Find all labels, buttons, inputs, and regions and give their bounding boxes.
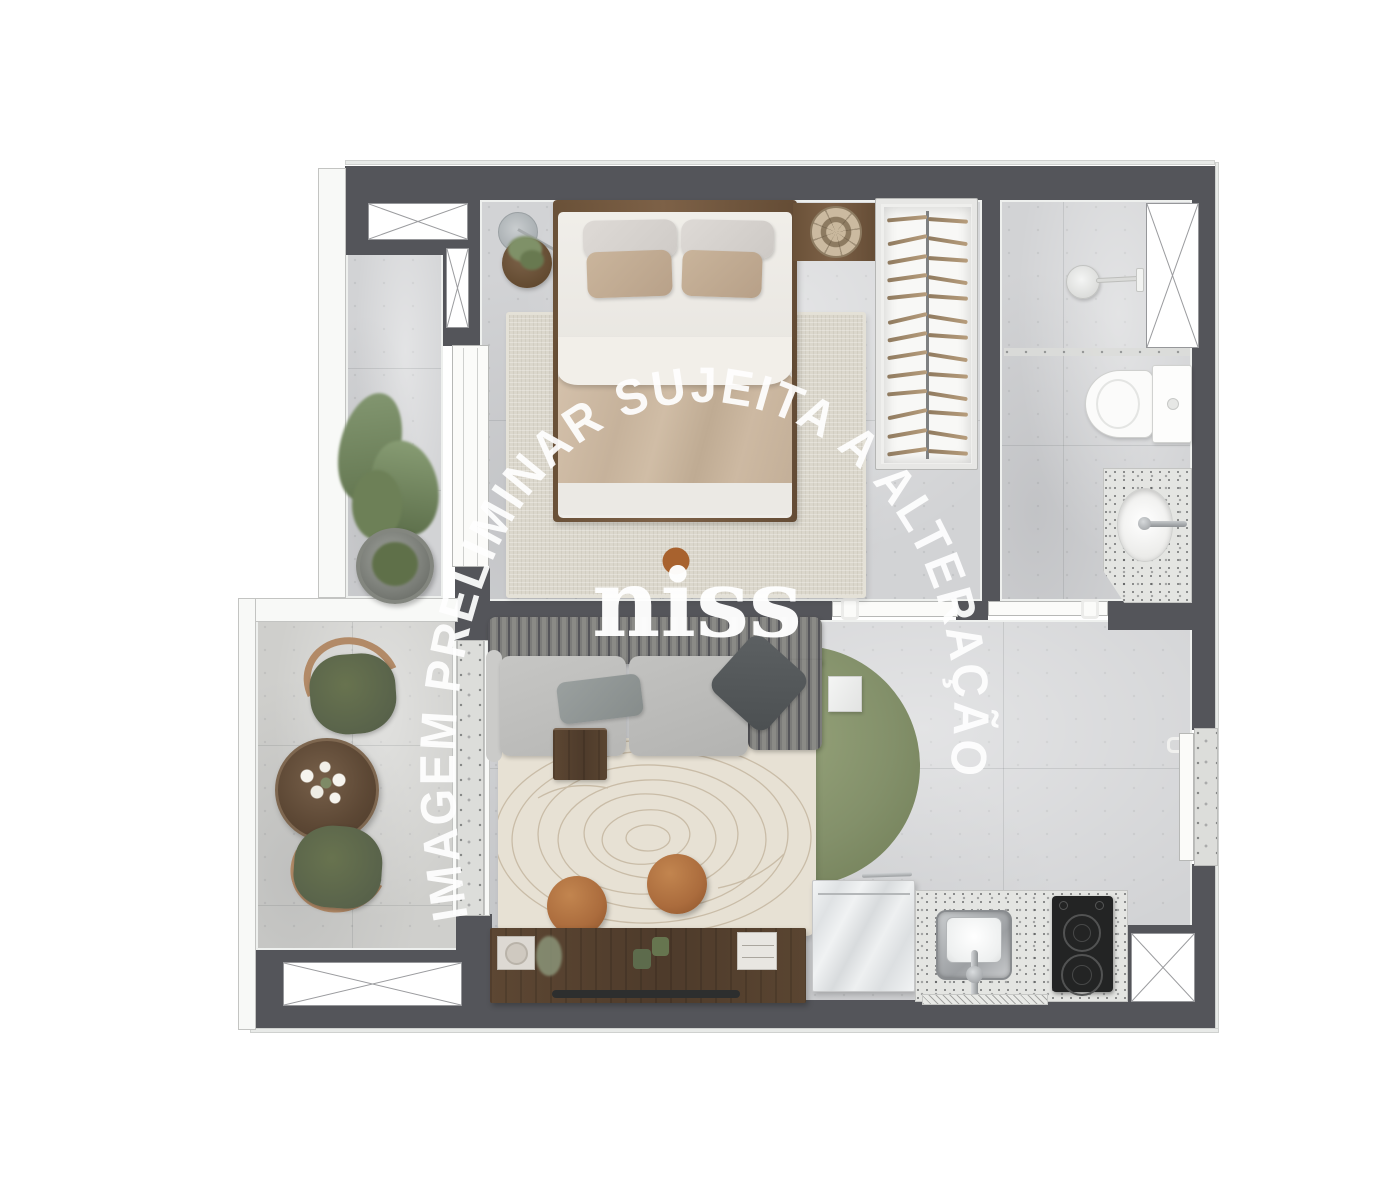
hanger (887, 350, 927, 360)
wall-pier-left-lower (456, 914, 492, 952)
wardrobe (875, 198, 978, 470)
hanger (928, 410, 968, 417)
foot-sheet (558, 483, 792, 515)
window-bathroom (1146, 203, 1199, 348)
tile-joint (258, 745, 456, 746)
corridor-plant-crown (372, 542, 418, 586)
magazine-line (742, 957, 774, 958)
outer-outline-right (1215, 162, 1219, 1030)
glass-door-line (463, 348, 464, 566)
entry-door (1179, 733, 1194, 861)
console-magazines (737, 932, 777, 970)
balcony-chair-seat (291, 823, 385, 911)
table-flowers (295, 758, 355, 814)
wall-divider-right (1108, 601, 1192, 630)
hanger (928, 430, 968, 440)
tray-dish (505, 942, 528, 965)
cooktop-burner (1063, 914, 1101, 952)
window-top-left (368, 203, 468, 240)
console-pot (633, 949, 651, 969)
corridor-outer-strip (318, 168, 346, 598)
closet-hangers (884, 207, 971, 463)
hanger (888, 312, 928, 325)
toilet-bowl (1085, 370, 1155, 438)
glass-door-line (477, 348, 478, 566)
door-handle (1081, 599, 1099, 619)
hanger (928, 333, 968, 340)
hanger (887, 273, 927, 283)
soundbar (552, 990, 740, 998)
balcony-sliding-door (452, 640, 490, 916)
sofa-side-stool (553, 728, 607, 780)
tile-joint (348, 368, 441, 369)
wardrobe-interior (884, 207, 971, 463)
outer-outline-top (345, 160, 1215, 165)
bathroom-sliding-door (988, 601, 1108, 616)
hanger (887, 254, 927, 265)
burner-inner-ring (1072, 965, 1092, 985)
hanger (887, 234, 927, 246)
balcony-left-rail (238, 598, 256, 1030)
window-bedroom-left (446, 248, 469, 328)
duvet (558, 375, 792, 487)
console-plant-sprig (536, 936, 562, 976)
wall-bathroom-left (982, 200, 1000, 601)
window-x-icon (447, 249, 468, 327)
hanger (928, 275, 968, 285)
shower-head-icon (1066, 265, 1100, 299)
wall-divider-pier (956, 601, 988, 620)
hanger (928, 449, 968, 456)
bathroom-faucet-base (1138, 517, 1151, 530)
terracotta-pouf (547, 876, 607, 936)
toilet-tank (1152, 365, 1192, 443)
burner-inner-ring (1073, 924, 1091, 942)
cooktop-knob (1059, 901, 1068, 910)
hanger (887, 331, 927, 343)
kitchen-floor-mat (922, 994, 1048, 1005)
corridor-glass-door (452, 345, 489, 567)
window-x-icon (369, 204, 467, 239)
toilet-flush-button (1167, 398, 1179, 410)
duvet-fold-sheet (558, 337, 792, 385)
tv-console (490, 928, 806, 1003)
kitchen-marble-cabinet (812, 880, 915, 992)
hanger (928, 391, 968, 401)
terracotta-pouf (647, 854, 707, 914)
corridor-plant-pot (356, 528, 434, 604)
balcony-top-rail (238, 598, 458, 622)
shower-drain-strip (1004, 348, 1190, 356)
hanger (928, 314, 968, 324)
tile-joint (1002, 445, 1190, 446)
entry-door-handle (1167, 737, 1179, 753)
hanger (928, 236, 968, 246)
door-threshold (457, 640, 484, 916)
hanger (928, 217, 968, 224)
hanger (887, 370, 927, 379)
rattan-pendant (810, 206, 862, 258)
hanger (928, 294, 968, 301)
cooktop-burner (1061, 954, 1103, 996)
hanger (928, 256, 968, 263)
hanger (928, 372, 968, 379)
shower-wall-mount (1136, 268, 1144, 292)
window-balcony (283, 962, 462, 1006)
hanger (887, 215, 927, 222)
window-kitchen (1131, 933, 1195, 1002)
kitchen-faucet-joint (966, 966, 983, 983)
bedroom-sliding-door (832, 601, 958, 617)
entry-threshold (1194, 728, 1218, 866)
cabinet-handle-line (818, 893, 910, 895)
hanger (887, 428, 927, 439)
bed-pillow-small-right (681, 250, 763, 299)
bed-pillow-small-left (586, 250, 673, 299)
floor-plan-image: niss IMAGEM PRELIMINAR SUJEITA A ALTERAÇ… (0, 0, 1384, 1200)
console-pot (652, 937, 669, 956)
toilet-seat-ring (1096, 379, 1140, 429)
magazine-line (742, 945, 774, 946)
hanger (887, 447, 927, 457)
hanger (887, 292, 927, 300)
cooktop-knob (1095, 901, 1104, 910)
window-x-icon (1132, 934, 1194, 1001)
window-x-icon (1147, 204, 1198, 347)
marble-side-table (828, 676, 862, 712)
decor-tray (497, 936, 535, 970)
tile-joint (1063, 202, 1064, 599)
cooktop (1052, 896, 1113, 992)
nightstand-plant (520, 250, 544, 270)
outer-outline-bottom (250, 1028, 1219, 1033)
window-x-icon (284, 963, 461, 1005)
hanger (887, 408, 927, 420)
hanger (887, 389, 927, 396)
door-handle (841, 598, 859, 620)
hanger (928, 352, 968, 362)
